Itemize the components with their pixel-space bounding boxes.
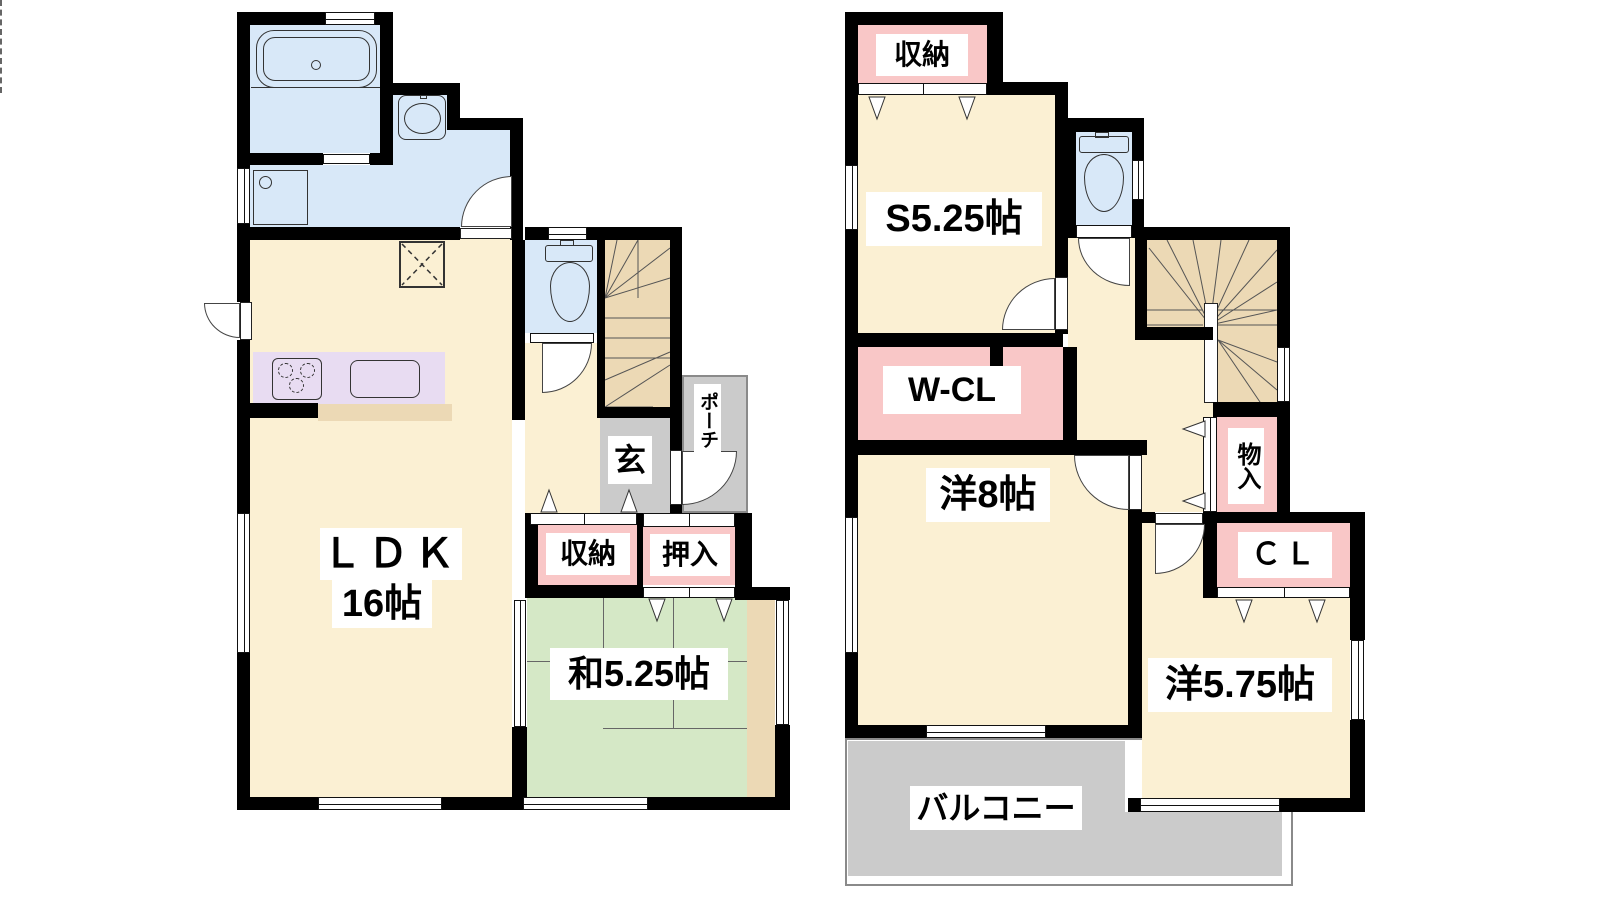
entry-closet-sliding-doors (643, 513, 735, 527)
door-swing-marker (540, 489, 558, 513)
cl-sliding-doors (1217, 587, 1350, 598)
door-swing-marker (1182, 492, 1206, 510)
window (926, 725, 1046, 738)
door-swing-marker (958, 96, 976, 120)
burner (300, 363, 315, 378)
window (318, 797, 442, 810)
wall (1128, 510, 1142, 738)
shunou-sliding-doors (530, 513, 637, 525)
wall (1277, 240, 1290, 347)
wall (1068, 132, 1076, 238)
pantry-x-lines (399, 241, 445, 288)
open-boundary-dashed (0, 0, 4, 93)
wall (442, 797, 523, 810)
wall (512, 727, 527, 797)
room-label-west575: 洋5.75帖 (1148, 658, 1332, 712)
wall (370, 153, 393, 165)
toilet-button-1f (560, 240, 574, 246)
wall (1135, 327, 1213, 340)
wall (1135, 227, 1290, 240)
room-label-balcony: バルコニー (910, 786, 1082, 830)
wall (1135, 240, 1147, 340)
wall (1128, 798, 1140, 812)
room-label-cl: ＣＬ (1238, 532, 1332, 578)
wall (380, 25, 393, 153)
wall (447, 95, 460, 130)
service-room-door-leaf (1055, 277, 1068, 330)
wall (525, 227, 548, 240)
wall (775, 725, 790, 810)
room-label-shunou-1f: 収納 (546, 533, 630, 575)
wall (1063, 347, 1077, 440)
burner (289, 378, 304, 393)
door-swing-marker (620, 489, 638, 513)
wall (845, 12, 1003, 25)
japanese-room-edge (747, 598, 775, 797)
front-door-leaf (670, 450, 682, 505)
door-swing-marker (1235, 599, 1253, 623)
toilet-tank-2f (1079, 136, 1129, 153)
room-label-service-room: S5.25帖 (866, 192, 1042, 246)
wall (237, 222, 250, 302)
window (548, 227, 587, 240)
wall (512, 240, 525, 420)
wall (735, 587, 790, 600)
ldk-room (250, 237, 512, 797)
kitchen-peninsula-wall (240, 403, 318, 418)
wall (237, 653, 250, 810)
west8-door-leaf (1129, 455, 1142, 510)
shunou-2f-sliding-doors (858, 83, 987, 95)
door-swing-marker (868, 96, 886, 120)
oshiire-sliding-doors (643, 587, 735, 598)
room-label-wcl: W-CL (883, 366, 1021, 414)
burner (278, 363, 293, 378)
service-door-leaf (240, 302, 252, 340)
washroom-door-leaf (460, 228, 512, 239)
wall (460, 118, 523, 130)
west575-door-leaf (1155, 513, 1203, 524)
wall (670, 227, 682, 418)
window (1277, 347, 1290, 402)
door-swing-marker (1308, 599, 1326, 623)
wall (845, 440, 1147, 455)
wall (1350, 523, 1365, 640)
wall (1203, 523, 1217, 598)
window (776, 600, 789, 725)
room-label-west8: 洋8帖 (926, 468, 1050, 522)
wall (393, 83, 460, 95)
wall (845, 725, 926, 738)
window (1140, 798, 1280, 812)
window (237, 168, 250, 224)
door-swing-marker (648, 598, 666, 622)
wall (1277, 402, 1290, 512)
toilet-button-2f (1095, 132, 1109, 138)
balcony (1125, 812, 1282, 876)
room-label-porch: ポーチ (694, 384, 721, 456)
stair-center-post (1204, 303, 1218, 403)
door-swing-marker (715, 598, 733, 622)
window (325, 12, 375, 25)
sliding-partition-track (514, 600, 526, 727)
window (523, 797, 648, 810)
window (845, 517, 858, 653)
room-label-shunou-2f: 収納 (876, 34, 968, 76)
wall (735, 513, 752, 598)
toilet-door-leaf-1f (530, 333, 594, 343)
wall (237, 797, 318, 810)
wall (1055, 95, 1068, 277)
wall (670, 418, 682, 450)
window (237, 513, 250, 653)
wall (1280, 798, 1365, 812)
room-label-ldk: ＬＤＫ (320, 528, 462, 580)
window (845, 165, 858, 230)
bathtub-inner (263, 37, 370, 81)
wall (250, 153, 323, 165)
room-label-ldk-size: 16帖 (332, 580, 432, 628)
room-label-mononyu: 物入 (1228, 428, 1264, 504)
tatami-line (603, 728, 747, 729)
service-door-swing (204, 303, 240, 338)
wall (1213, 402, 1290, 417)
wall (845, 25, 858, 165)
wall (987, 25, 1003, 95)
door-swing-marker (1182, 420, 1206, 438)
bathtub-drain (311, 60, 321, 70)
room-label-oshiire: 押入 (650, 534, 730, 576)
wall (237, 340, 250, 513)
wall (1132, 118, 1144, 160)
stairs-1f-treads (605, 240, 670, 407)
washer-drain (259, 176, 272, 189)
wall (1003, 82, 1068, 95)
wall (1135, 512, 1155, 523)
wall (1046, 725, 1142, 738)
wall (587, 227, 682, 240)
wall (597, 240, 605, 410)
floorplan-canvas: ＬＤＫ 16帖 和5.25帖 収納 押入 玄 ポーチ (0, 0, 1600, 900)
wall (525, 585, 643, 598)
toilet-tank-1f (545, 245, 593, 262)
wall (597, 407, 682, 418)
kitchen-sink (350, 360, 420, 398)
wall (250, 227, 460, 240)
room-label-washitsu: 和5.25帖 (550, 648, 728, 700)
kitchen-counter-base (318, 404, 452, 421)
room-label-genkan: 玄 (608, 436, 652, 484)
wall (237, 25, 250, 170)
wash-basin (404, 103, 441, 134)
toilet-door-leaf-2f (1076, 225, 1132, 238)
wall (648, 797, 790, 810)
bathroom-sliding-door (323, 154, 370, 164)
bath-apron-line (251, 87, 381, 88)
window (1351, 640, 1364, 720)
wall (1203, 512, 1365, 523)
wall (845, 333, 1063, 347)
window (1132, 160, 1144, 200)
